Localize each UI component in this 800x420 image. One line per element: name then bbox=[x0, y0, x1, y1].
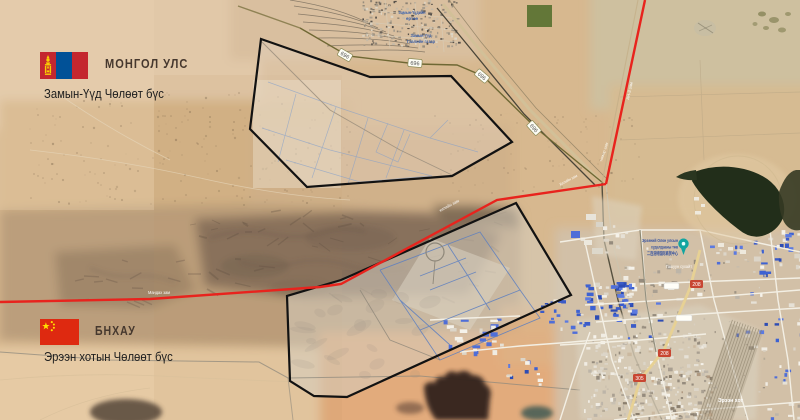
svg-text:Эрээний Олон улсын: Эрээний Олон улсын bbox=[642, 237, 678, 243]
svg-text:өртөө: өртөө bbox=[406, 16, 418, 21]
svg-text:305: 305 bbox=[635, 376, 644, 382]
svg-text:Эрээн хот: Эрээн хот bbox=[718, 398, 743, 404]
svg-text:Мандах зам: Мандах зам bbox=[148, 290, 170, 295]
svg-text:208: 208 bbox=[660, 351, 669, 357]
svg-text:Гаалийн газар: Гаалийн газар bbox=[407, 38, 435, 44]
svg-text:Замын-Үүд: Замын-Үүд bbox=[411, 33, 432, 38]
svg-text:696: 696 bbox=[410, 61, 420, 68]
svg-text:二连浩特国际商贸中心: 二连浩特国际商贸中心 bbox=[647, 250, 678, 257]
svg-text:208: 208 bbox=[692, 282, 701, 288]
svg-text:Замын-Үүдийн: Замын-Үүдийн bbox=[399, 9, 426, 15]
svg-text:худалдааны төв: худалдааны төв bbox=[651, 245, 678, 250]
svg-text:Гашуун сухайт: Гашуун сухайт bbox=[666, 264, 692, 269]
